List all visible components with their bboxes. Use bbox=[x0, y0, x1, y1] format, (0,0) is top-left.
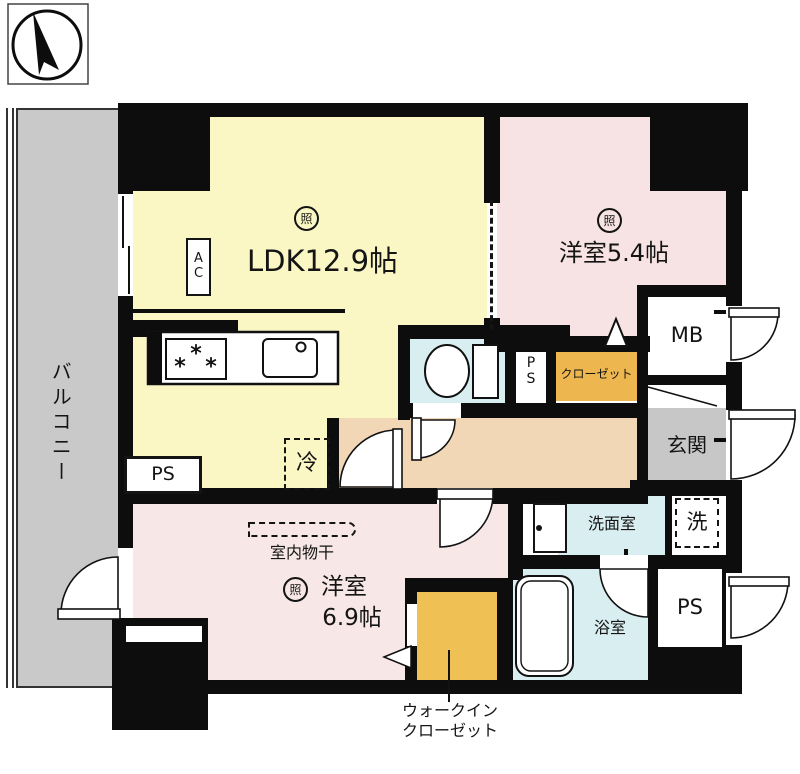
door-opening bbox=[600, 555, 648, 569]
wall bbox=[484, 336, 650, 352]
north-arrow-icon bbox=[33, 12, 59, 75]
floor-plan: * * * バルコニー LDK12.9帖 A C 照 洋室5.4帖 照 MB ク… bbox=[0, 0, 800, 774]
balcony-label: バルコニー bbox=[44, 328, 76, 518]
door-opening bbox=[726, 573, 742, 645]
door-opening bbox=[726, 410, 742, 480]
ac-label: A C bbox=[186, 238, 211, 296]
refrigerator-label: 冷 bbox=[284, 438, 330, 490]
bathroom-label: 浴室 bbox=[584, 616, 636, 640]
corridor bbox=[339, 418, 637, 490]
pipe-space-ldk-label: PS bbox=[124, 456, 202, 494]
light-symbol: 照 bbox=[283, 577, 308, 602]
ldk-label: LDK12.9帖 bbox=[210, 242, 435, 280]
washroom-label: 洗面室 bbox=[566, 512, 658, 536]
wic-label-line2: クローゼット bbox=[385, 721, 515, 741]
pipe-space-toilet-label: P S bbox=[517, 345, 545, 399]
pipe-space-right-label: PS bbox=[658, 594, 722, 622]
bedroom2-name-label: 洋室 bbox=[306, 573, 382, 603]
door-opening bbox=[118, 548, 133, 618]
wall bbox=[637, 285, 742, 297]
wall bbox=[650, 103, 748, 191]
light-symbol: 照 bbox=[597, 208, 622, 233]
light-symbol: 照 bbox=[294, 206, 319, 231]
door-opening bbox=[726, 306, 742, 362]
wall bbox=[128, 680, 742, 694]
counter-end-cap bbox=[148, 332, 162, 384]
walk-in-closet-area bbox=[417, 592, 497, 682]
door-opening bbox=[407, 604, 417, 646]
wall bbox=[497, 578, 513, 682]
compass-circle bbox=[13, 11, 81, 79]
meter-box-label: MB bbox=[648, 321, 726, 351]
bedroom1-label: 洋室5.4帖 bbox=[528, 237, 700, 269]
kitchen-back-wall bbox=[128, 320, 238, 337]
entrance-step bbox=[648, 385, 726, 408]
door-opening bbox=[437, 488, 493, 504]
wall bbox=[118, 103, 210, 191]
door-opening bbox=[413, 403, 461, 418]
compass-frame bbox=[8, 4, 88, 84]
door-knob bbox=[536, 525, 542, 531]
wall bbox=[665, 490, 672, 557]
entrance-label: 玄関 bbox=[650, 430, 724, 460]
laundry-rack-symbol bbox=[248, 522, 356, 537]
bedroom2-size-label: 6.9帖 bbox=[300, 604, 404, 634]
wic-label-line1: ウォークイン bbox=[385, 701, 515, 721]
kitchen-counter-line bbox=[133, 309, 345, 313]
wall bbox=[484, 117, 500, 203]
balcony-outer-rail bbox=[6, 108, 14, 688]
wall bbox=[126, 488, 648, 504]
wall bbox=[637, 375, 726, 385]
laundry-rack-label: 室内物干 bbox=[246, 542, 358, 564]
movable-partition-line bbox=[490, 200, 493, 330]
washer-label: 洗 bbox=[675, 498, 719, 548]
window-slot bbox=[126, 626, 202, 642]
closet-label: クローゼット bbox=[554, 362, 639, 388]
window-opening bbox=[118, 194, 133, 296]
wall bbox=[630, 480, 742, 496]
